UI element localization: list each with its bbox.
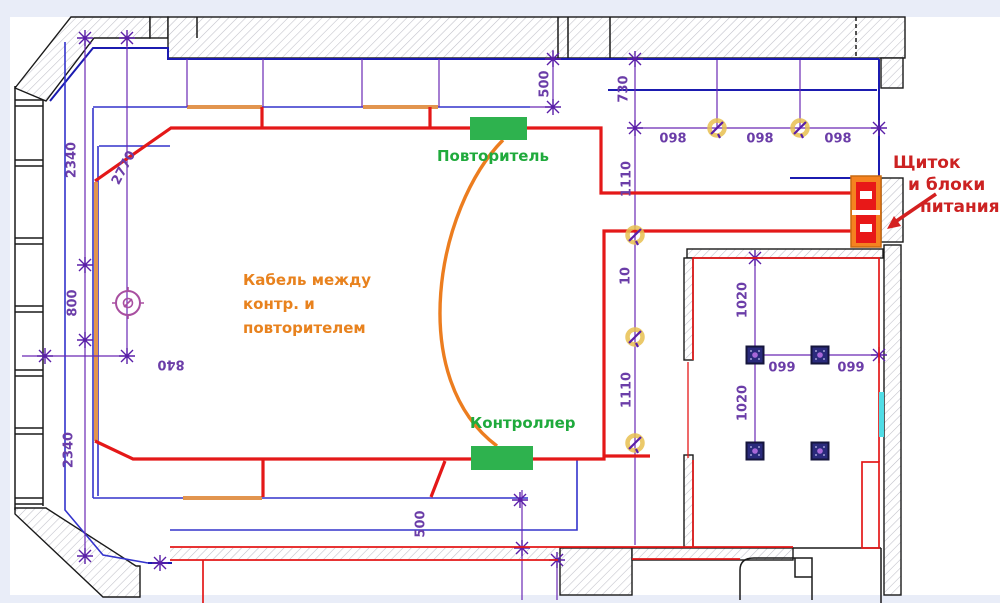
- dim-left-wall-middle: 800: [66, 289, 81, 316]
- spotlight-icon: [812, 347, 829, 364]
- power-panel-note-line3: питания: [920, 196, 1000, 218]
- wall-room2-top: [687, 249, 883, 258]
- cable-note-line3: повторителем: [243, 316, 371, 340]
- spotlight-icon: [747, 443, 764, 460]
- floor-plan-screenshot: 2340 2770 800 2340 840 500 730 1110 10 1…: [0, 0, 1000, 603]
- dim-room2-horizontal-1: 099: [768, 361, 795, 376]
- dim-bottom-offset: 500: [414, 510, 429, 537]
- wall-bottom-thin: [170, 548, 560, 560]
- dim-corridor-span-2: 10: [619, 267, 634, 285]
- dim-top-corridor: 730: [617, 75, 632, 102]
- dim-ceiling-lights-1: 098: [659, 132, 686, 147]
- dim-left-wall-bottom: 2340: [62, 432, 77, 468]
- door-marker: [879, 392, 884, 437]
- dim-left-wall-top: 2340: [65, 142, 80, 178]
- power-panel-note-line2: и блоки: [908, 174, 1000, 196]
- dim-room2-vertical-1: 1020: [736, 282, 751, 318]
- controller-box: [471, 446, 533, 470]
- power-panel-note-line1: Щиток: [893, 152, 1000, 174]
- power-panel-box: [851, 176, 881, 247]
- power-panel-note: Щиток и блоки питания: [893, 152, 1000, 218]
- repeater-label: Повторитель: [437, 147, 549, 165]
- spotlight-icon: [812, 443, 829, 460]
- dim-corridor-span-3: 1110: [620, 372, 635, 408]
- dim-left-horizontal: 840: [157, 357, 184, 372]
- dim-room2-horizontal-2: 099: [837, 361, 864, 376]
- dim-ceiling-lights-2: 098: [746, 132, 773, 147]
- wall-top-band: [168, 17, 905, 58]
- floor-plan-drawing: [0, 0, 1000, 603]
- dim-room2-vertical-2: 1020: [736, 385, 751, 421]
- wall-right: [884, 245, 901, 595]
- repeater-box: [470, 117, 527, 140]
- dim-top-right-offset: 500: [538, 70, 553, 97]
- cable-note-line1: Кабель между: [243, 268, 371, 292]
- dim-corridor-span-1: 1110: [620, 161, 635, 197]
- wall-bottom-block: [560, 548, 632, 595]
- controller-label: Контроллер: [470, 414, 576, 432]
- cable-note-line2: контр. и: [243, 292, 371, 316]
- spotlight-icon: [747, 347, 764, 364]
- cable-note: Кабель между контр. и повторителем: [243, 268, 371, 340]
- dim-ceiling-lights-3: 098: [824, 132, 851, 147]
